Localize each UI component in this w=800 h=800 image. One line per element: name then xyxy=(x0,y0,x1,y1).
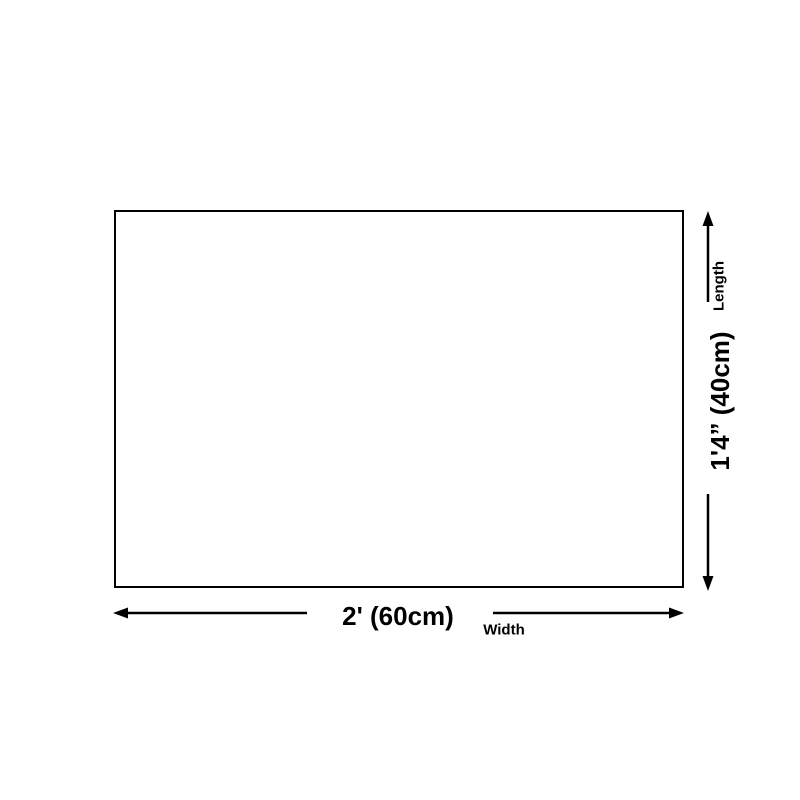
arrowhead-up-icon xyxy=(703,211,714,226)
arrowhead-left-icon xyxy=(113,608,128,619)
length-dimension-value: 1'4” (40cm) xyxy=(707,331,733,470)
width-axis-label: Width xyxy=(483,623,525,638)
arrowhead-right-icon xyxy=(669,608,684,619)
dimension-arrows-layer xyxy=(0,0,800,800)
arrowhead-down-icon xyxy=(703,576,714,591)
length-axis-label: Length xyxy=(712,261,727,311)
dimension-diagram: 2' (60cm) Width 1'4” (40cm) Length xyxy=(0,0,800,800)
width-dimension-value: 2' (60cm) xyxy=(342,603,454,629)
